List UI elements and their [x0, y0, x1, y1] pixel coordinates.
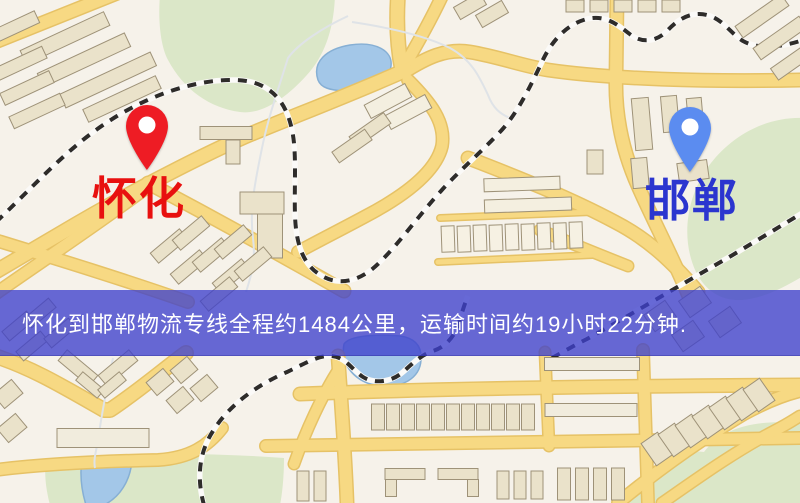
road: [397, 0, 402, 70]
building: [372, 404, 385, 430]
building: [226, 140, 240, 164]
building: [468, 480, 479, 497]
building: [537, 223, 551, 249]
building: [432, 404, 445, 430]
building: [569, 222, 583, 248]
pin-hole: [139, 117, 156, 134]
building: [507, 404, 520, 430]
building: [441, 226, 455, 252]
building: [553, 223, 567, 249]
building: [638, 0, 656, 12]
pin-shape: [669, 107, 711, 172]
building: [545, 358, 640, 371]
building: [200, 127, 252, 140]
building: [514, 471, 526, 499]
building: [386, 480, 397, 497]
building: [438, 469, 478, 480]
building: [521, 224, 535, 250]
huaihua-pin-icon[interactable]: [123, 104, 171, 172]
building: [447, 404, 460, 430]
building: [566, 0, 584, 12]
building: [297, 471, 309, 501]
handan-pin-icon[interactable]: [666, 106, 714, 174]
building: [314, 471, 326, 501]
building: [594, 468, 607, 500]
pin-shape: [126, 105, 168, 170]
building: [612, 468, 625, 500]
map-canvas: 怀化 邯郸 怀化到邯郸物流专线全程约1484公里，运输时间约19小时22分钟.: [0, 0, 800, 503]
pin-hole: [682, 119, 699, 136]
building: [505, 224, 519, 250]
huaihua-label: 怀化: [92, 176, 186, 221]
building: [387, 404, 400, 430]
building: [531, 471, 543, 499]
building: [492, 404, 505, 430]
building: [57, 429, 149, 448]
route-info-text: 怀化到邯郸物流专线全程约1484公里，运输时间约19小时22分钟.: [22, 307, 687, 339]
building: [522, 404, 535, 430]
building: [662, 0, 680, 12]
building: [484, 176, 560, 192]
building: [473, 225, 487, 251]
building: [477, 404, 490, 430]
building: [587, 150, 603, 174]
building: [497, 471, 509, 499]
building: [402, 404, 415, 430]
building: [240, 192, 284, 214]
building: [614, 0, 632, 12]
building: [590, 0, 608, 12]
route-info-banner: 怀化到邯郸物流专线全程约1484公里，运输时间约19小时22分钟.: [0, 290, 800, 356]
building: [462, 404, 475, 430]
handan-label: 邯郸: [645, 178, 739, 223]
building: [457, 226, 471, 252]
basemap: [0, 0, 800, 503]
building: [545, 404, 637, 417]
building: [484, 197, 571, 213]
building: [385, 469, 425, 480]
building: [558, 468, 571, 500]
building: [489, 225, 503, 251]
building: [417, 404, 430, 430]
building: [576, 468, 589, 500]
